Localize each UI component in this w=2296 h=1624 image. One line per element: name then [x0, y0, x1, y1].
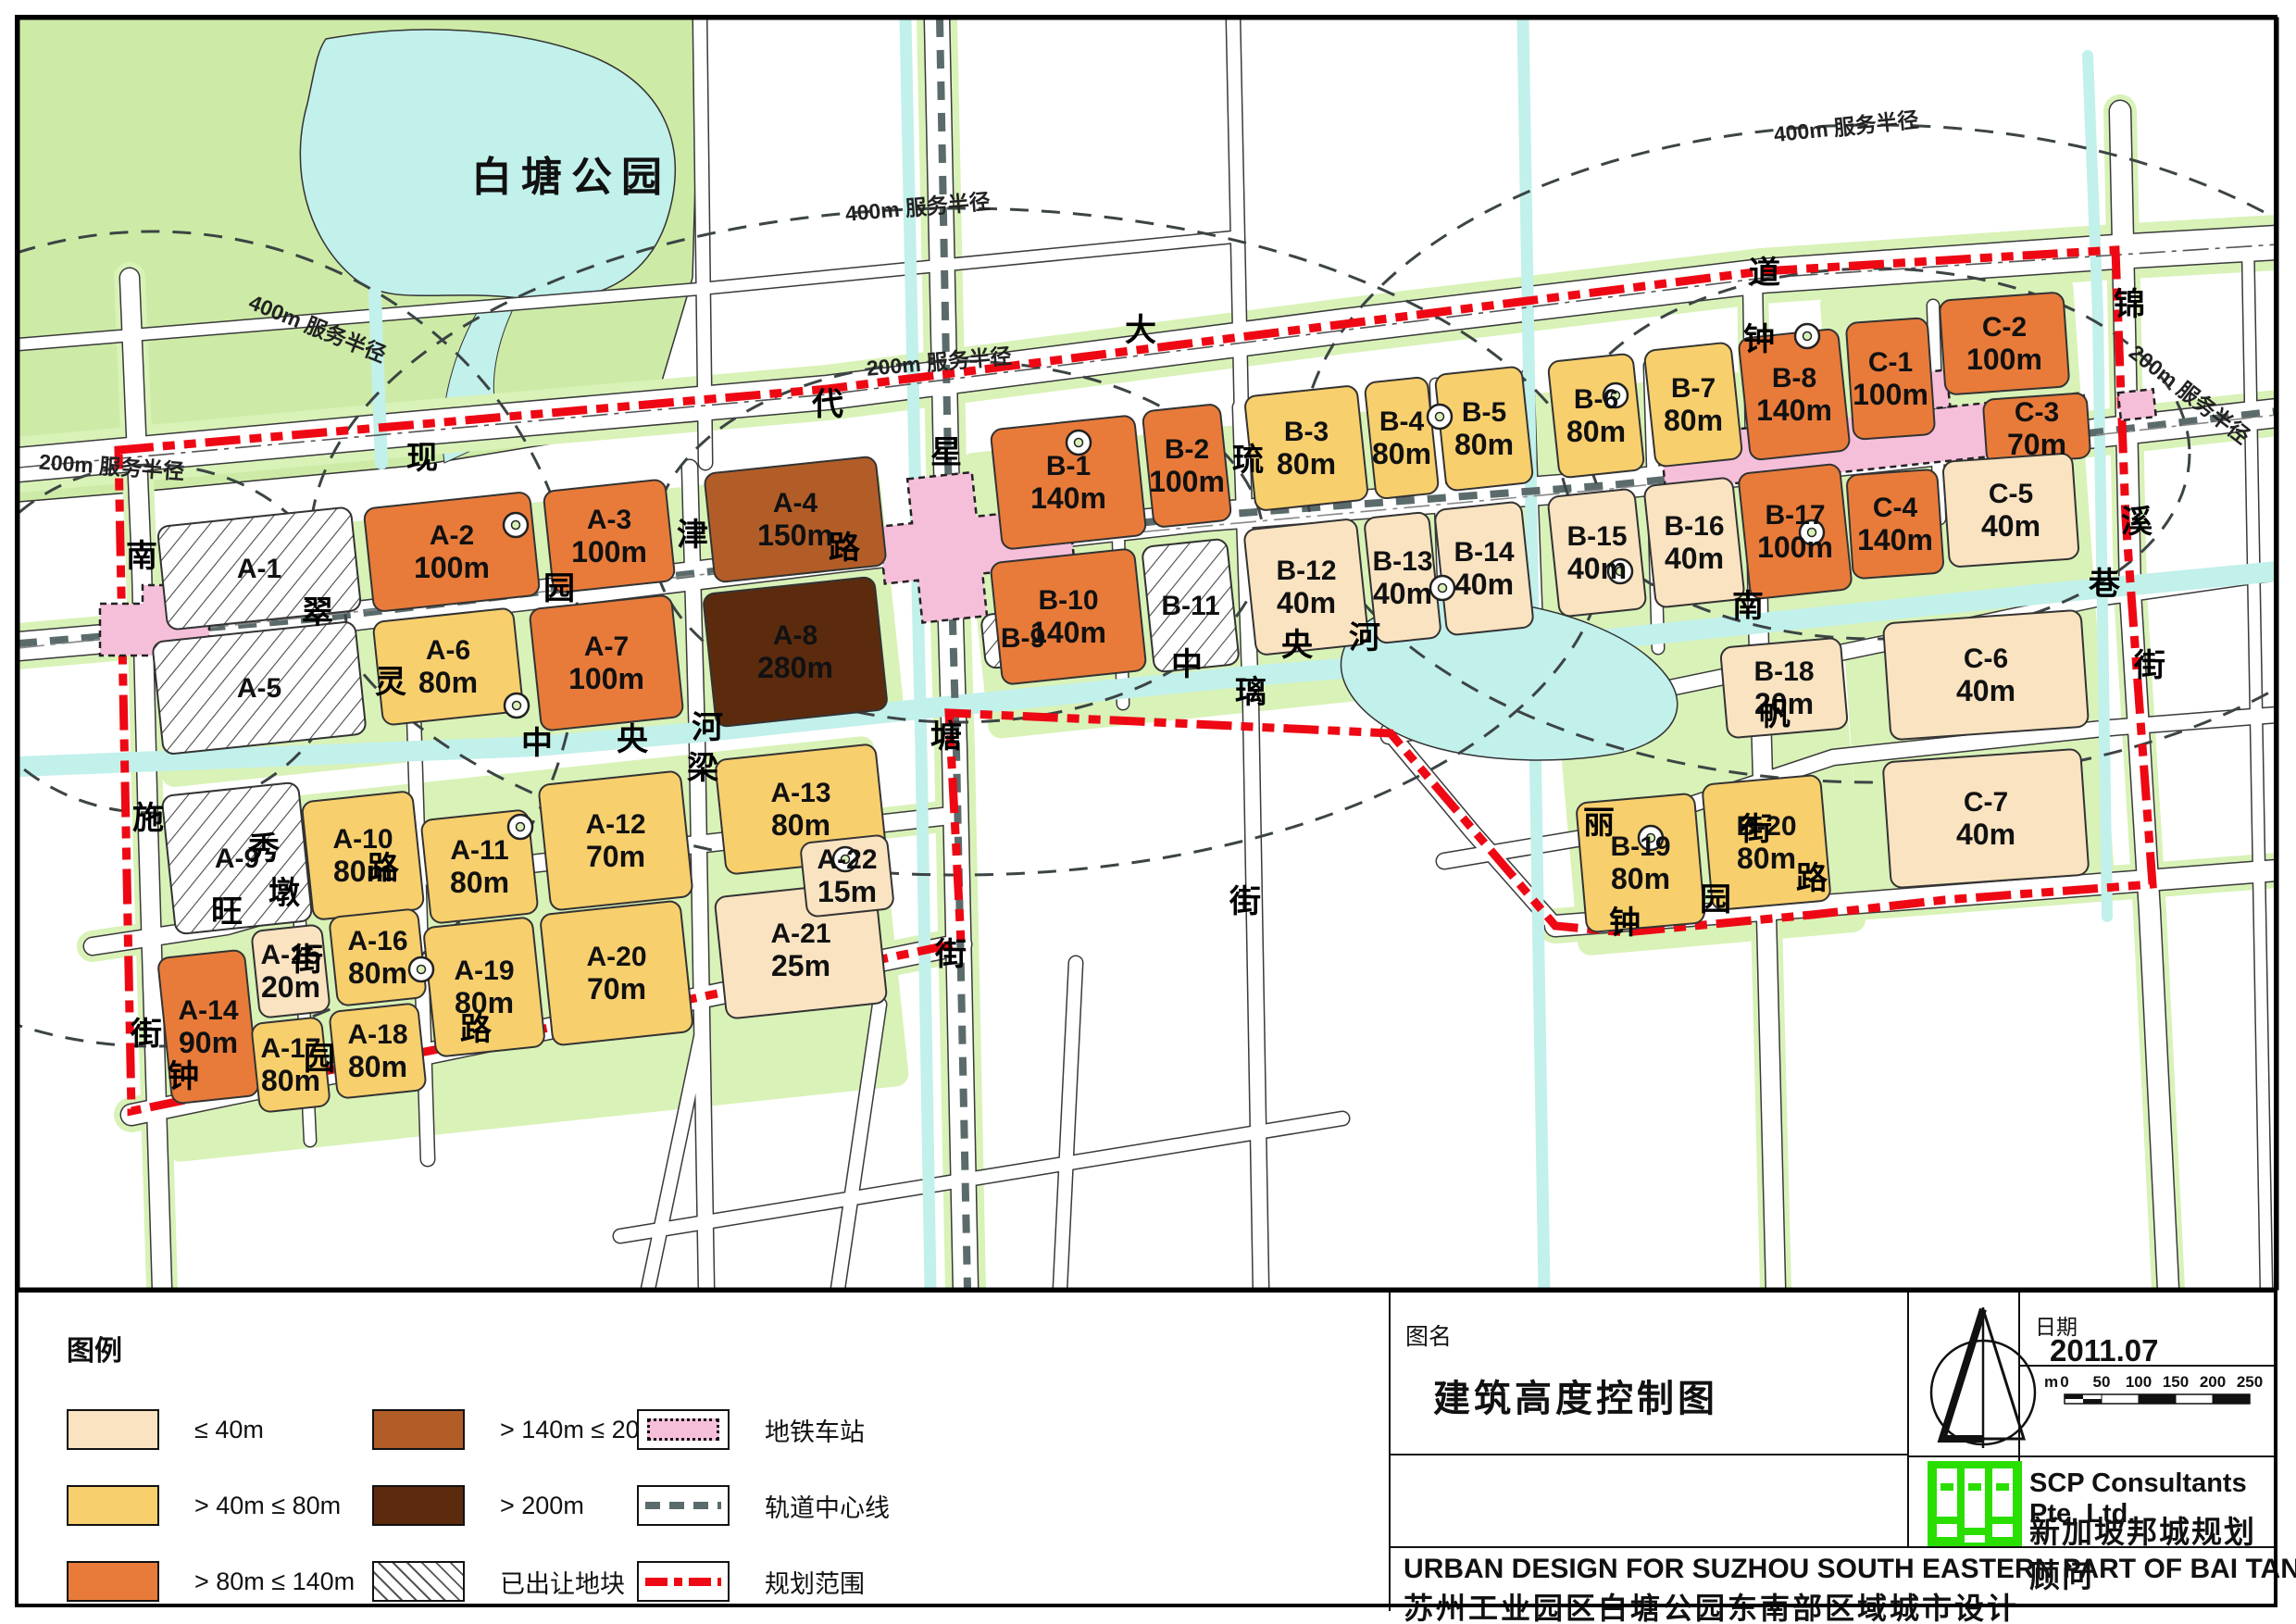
drawing-sheet: A-1A-2100mA-3100mA-4150mA-5A-680mA-7100m… — [0, 0, 2296, 1624]
sheet-border — [15, 15, 2277, 1607]
